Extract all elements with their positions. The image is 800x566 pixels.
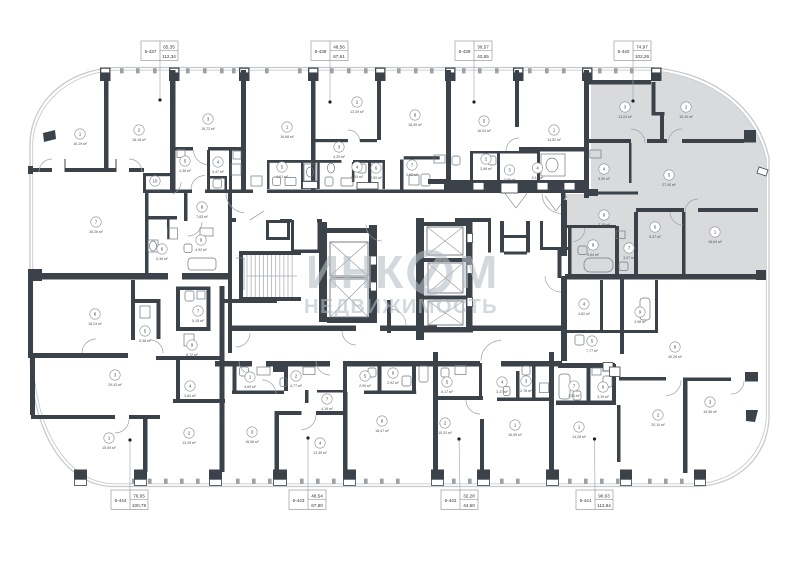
svg-text:5-440: 5-440 xyxy=(618,49,630,54)
svg-text:18,45 м²: 18,45 м² xyxy=(408,123,422,127)
svg-text:2,59 м²: 2,59 м² xyxy=(370,176,382,180)
svg-text:5-437: 5-437 xyxy=(145,49,157,54)
svg-text:48,54: 48,54 xyxy=(311,494,323,499)
svg-text:13,39 м²: 13,39 м² xyxy=(313,451,327,455)
svg-text:5,36 м²: 5,36 м² xyxy=(156,257,168,261)
svg-text:6,72 м²: 6,72 м² xyxy=(186,353,198,357)
svg-text:3,98 м²: 3,98 м² xyxy=(634,320,646,324)
svg-text:113,84: 113,84 xyxy=(597,503,611,508)
svg-text:102,26: 102,26 xyxy=(635,54,649,59)
svg-text:20,10 м²: 20,10 м² xyxy=(651,423,665,427)
svg-text:5,11 м²: 5,11 м² xyxy=(532,176,544,180)
svg-text:4,69 м²: 4,69 м² xyxy=(244,385,256,389)
svg-text:10: 10 xyxy=(153,178,158,183)
svg-text:65,35: 65,35 xyxy=(163,45,175,50)
svg-text:М: М xyxy=(459,246,499,298)
svg-text:16,68 м²: 16,68 м² xyxy=(280,135,294,139)
svg-text:67,80: 67,80 xyxy=(311,503,323,508)
svg-text:44,60: 44,60 xyxy=(463,503,475,508)
svg-text:1,35 м²: 1,35 м² xyxy=(149,189,161,193)
svg-text:4,82 м²: 4,82 м² xyxy=(578,312,590,316)
svg-text:29,43 м²: 29,43 м² xyxy=(108,383,122,387)
svg-text:5,15 м²: 5,15 м² xyxy=(192,319,204,323)
svg-text:7,77 м²: 7,77 м² xyxy=(586,349,598,353)
svg-text:2,78 м²: 2,78 м² xyxy=(520,389,532,393)
svg-text:3,98 м²: 3,98 м² xyxy=(480,167,492,171)
svg-text:5,64 м²: 5,64 м² xyxy=(587,253,599,257)
svg-text:18,64 м²: 18,64 м² xyxy=(708,240,722,244)
svg-text:35,26 м²: 35,26 м² xyxy=(89,230,103,234)
svg-text:НЕДВИЖИМОСТЬ: НЕДВИЖИМОСТЬ xyxy=(304,296,498,318)
svg-text:43,65: 43,65 xyxy=(477,54,489,59)
svg-text:13,39 м²: 13,39 м² xyxy=(350,110,364,114)
svg-text:2,92 м²: 2,92 м² xyxy=(406,173,418,177)
svg-text:18,47 м²: 18,47 м² xyxy=(375,429,389,433)
svg-text:4,04 м²: 4,04 м² xyxy=(351,175,363,179)
svg-text:13,39 м²: 13,39 м² xyxy=(182,441,196,445)
svg-text:15,72 м²: 15,72 м² xyxy=(201,127,215,131)
svg-text:4,61 м²: 4,61 м² xyxy=(276,175,288,179)
svg-text:76,65: 76,65 xyxy=(133,494,145,499)
svg-text:2,99 м²: 2,99 м² xyxy=(359,384,371,388)
svg-text:16,19 м²: 16,19 м² xyxy=(73,142,87,146)
svg-text:2,92 м²: 2,92 м² xyxy=(387,381,399,385)
svg-text:40,26 м²: 40,26 м² xyxy=(668,355,682,359)
svg-text:13,03 м²: 13,03 м² xyxy=(618,115,632,119)
svg-text:112,34: 112,34 xyxy=(162,54,176,59)
svg-text:16,95 м²: 16,95 м² xyxy=(508,433,522,437)
svg-text:5-438: 5-438 xyxy=(315,49,327,54)
svg-text:14,52 м²: 14,52 м² xyxy=(547,138,561,142)
svg-text:5,37 м²: 5,37 м² xyxy=(649,235,661,239)
svg-text:5-444: 5-444 xyxy=(115,498,127,503)
svg-text:7,19 м²: 7,19 м² xyxy=(598,223,610,227)
svg-text:3,37 м²: 3,37 м² xyxy=(496,390,508,394)
svg-text:3,51 м²: 3,51 м² xyxy=(568,394,580,398)
svg-text:4,20 м²: 4,20 м² xyxy=(333,155,345,159)
svg-text:18,24 м²: 18,24 м² xyxy=(88,322,102,326)
svg-text:67,61: 67,61 xyxy=(333,54,345,59)
svg-text:ИНК: ИНК xyxy=(306,246,405,298)
svg-text:15,10 м²: 15,10 м² xyxy=(679,115,693,119)
svg-text:15,96 м²: 15,96 м² xyxy=(703,410,717,414)
svg-text:5,90 м²: 5,90 м² xyxy=(598,177,610,181)
svg-text:3,84 м²: 3,84 м² xyxy=(184,394,196,398)
svg-text:5,38 м²: 5,38 м² xyxy=(139,339,151,343)
svg-text:5-443: 5-443 xyxy=(293,498,305,503)
svg-text:100,79: 100,79 xyxy=(132,503,146,508)
svg-text:4,77 м²: 4,77 м² xyxy=(290,384,302,388)
svg-text:16,04 м²: 16,04 м² xyxy=(477,129,491,133)
svg-text:15,32 м²: 15,32 м² xyxy=(438,431,452,435)
svg-text:3,47 м²: 3,47 м² xyxy=(212,170,224,174)
svg-text:30,57: 30,57 xyxy=(477,45,489,50)
svg-text:4,92 м²: 4,92 м² xyxy=(195,248,207,252)
svg-text:16,68 м²: 16,68 м² xyxy=(245,440,259,444)
svg-text:18,18 м²: 18,18 м² xyxy=(132,138,146,142)
svg-text:3,99 м²: 3,99 м² xyxy=(504,178,516,182)
svg-text:48,56: 48,56 xyxy=(333,45,345,50)
svg-text:27,40 м²: 27,40 м² xyxy=(662,183,676,187)
svg-text:5-441: 5-441 xyxy=(580,498,592,503)
svg-text:3,27 м²: 3,27 м² xyxy=(623,256,635,260)
svg-text:5-442: 5-442 xyxy=(445,498,457,503)
svg-text:6,17 м²: 6,17 м² xyxy=(441,390,453,394)
svg-text:32,28: 32,28 xyxy=(463,494,475,499)
svg-text:5-439: 5-439 xyxy=(459,49,471,54)
svg-text:14,28 м²: 14,28 м² xyxy=(572,435,586,439)
svg-text:74,97: 74,97 xyxy=(636,45,648,50)
svg-text:3,15 м²: 3,15 м² xyxy=(597,395,609,399)
svg-text:4,36 м²: 4,36 м² xyxy=(179,169,191,173)
svg-text:15,59 м²: 15,59 м² xyxy=(102,446,116,450)
svg-text:7,83 м²: 7,83 м² xyxy=(196,215,208,219)
svg-text:90,63: 90,63 xyxy=(598,494,610,499)
svg-text:4,19 м²: 4,19 м² xyxy=(321,407,333,411)
